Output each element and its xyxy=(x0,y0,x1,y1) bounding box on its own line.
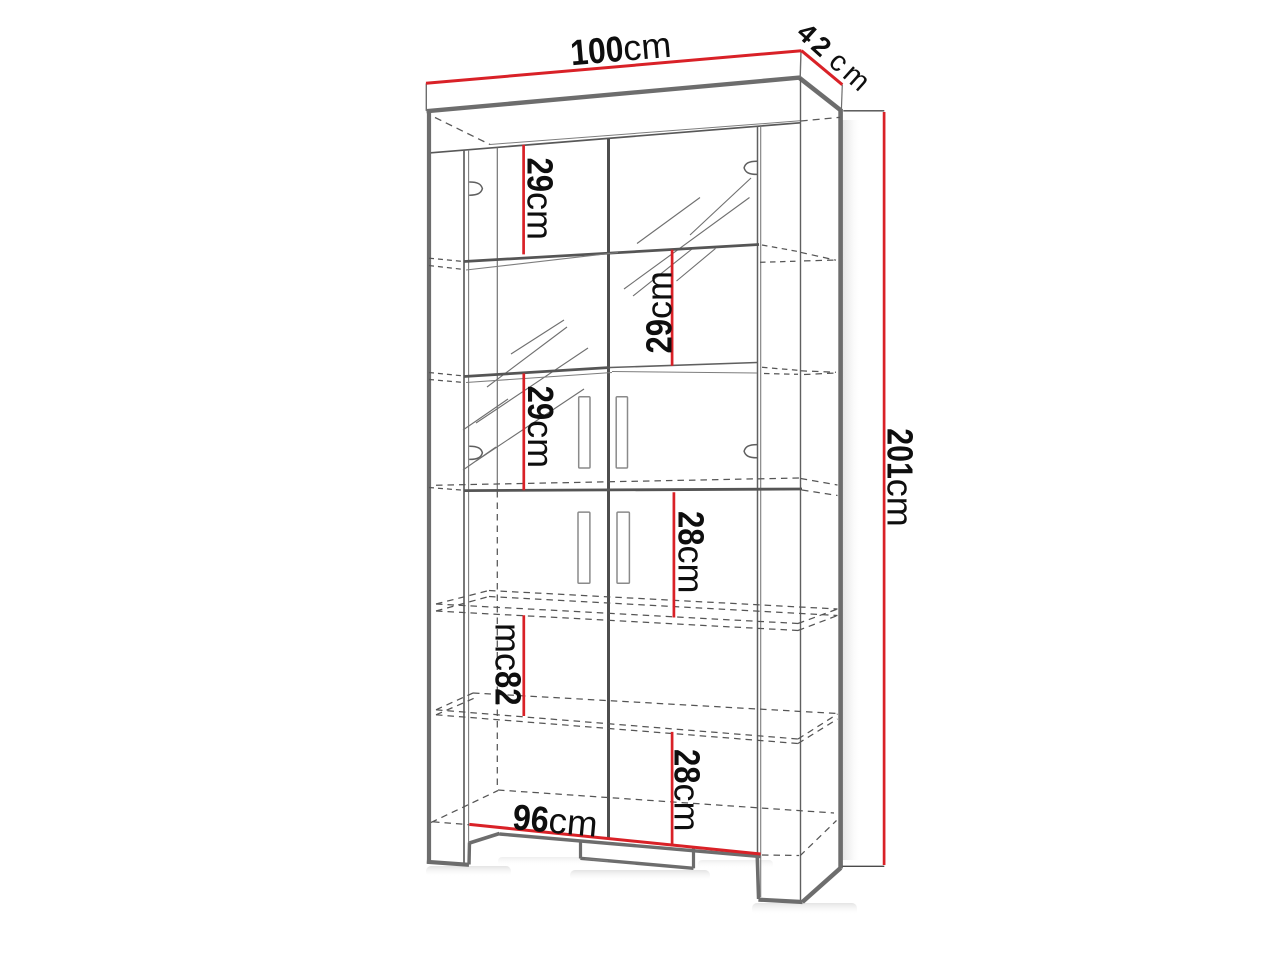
svg-text:29cm: 29cm xyxy=(638,271,679,354)
svg-text:96cm: 96cm xyxy=(511,796,599,845)
svg-text:29cm: 29cm xyxy=(520,386,561,469)
svg-text:mc82: mc82 xyxy=(487,623,528,706)
svg-text:28cm: 28cm xyxy=(671,511,712,594)
svg-text:28cm: 28cm xyxy=(667,749,708,832)
svg-text:29cm: 29cm xyxy=(520,158,561,241)
svg-text:100cm: 100cm xyxy=(569,24,673,73)
svg-text:201cm: 201cm xyxy=(880,428,921,527)
